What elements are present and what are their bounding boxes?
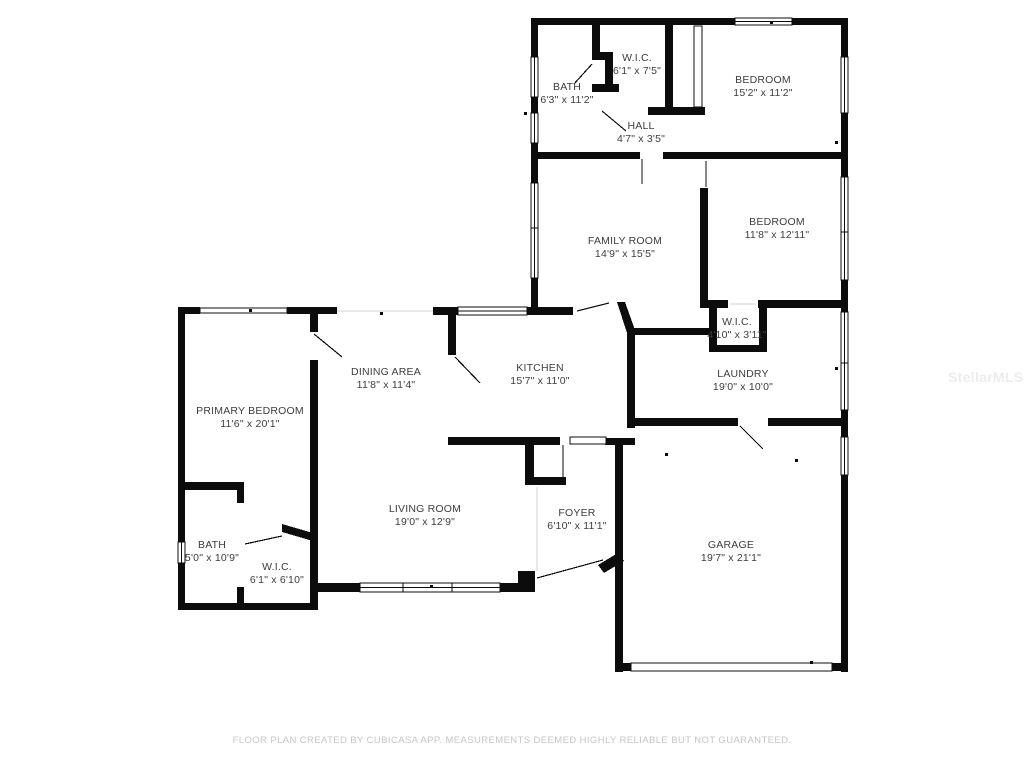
room-dims: 19'7" x 21'1"	[701, 552, 761, 565]
room-name: W.I.C.	[613, 52, 661, 65]
room-label-kitchen: KITCHEN 15'7" x 11'0"	[510, 362, 569, 388]
room-label-wic-3: W.I.C. 6'1" x 6'10"	[250, 561, 304, 587]
floor-plan-image: BATH 6'3" x 11'2" W.I.C. 6'1" x 7'5" BED…	[0, 0, 1024, 768]
room-label-hall: HALL 4'7" x 3'5"	[617, 120, 665, 146]
room-name: BEDROOM	[733, 74, 792, 87]
windows-layer	[178, 18, 848, 592]
room-name: BATH	[540, 81, 593, 94]
room-dims: 15'7" x 11'0"	[510, 375, 569, 388]
room-label-living-room: LIVING ROOM 19'0" x 12'9"	[389, 503, 461, 529]
room-label-bath-2: BATH 5'0" x 10'9"	[185, 539, 239, 565]
room-name: GARAGE	[701, 539, 761, 552]
room-name: W.I.C.	[250, 561, 304, 574]
room-dims: 6'10" x 11'1"	[547, 520, 606, 533]
pocket-door	[570, 437, 606, 444]
room-name: LIVING ROOM	[389, 503, 461, 516]
room-dims: 11'8" x 12'11"	[745, 229, 810, 242]
disclaimer-text: FLOOR PLAN CREATED BY CUBICASA APP. MEAS…	[0, 735, 1024, 746]
room-dims: 19'0" x 12'9"	[389, 516, 461, 529]
room-dims: 14'9" x 15'5"	[588, 248, 662, 261]
room-name: PRIMARY BEDROOM	[196, 405, 304, 418]
room-dims: 4'10" x 3'11"	[707, 329, 766, 342]
room-name: BEDROOM	[745, 216, 810, 229]
room-dims: 15'2" x 11'2"	[733, 87, 792, 100]
room-dims: 11'6" x 20'1"	[196, 418, 304, 431]
room-name: DINING AREA	[351, 366, 421, 379]
room-name: FOYER	[547, 507, 606, 520]
room-label-bedroom-1: BEDROOM 15'2" x 11'2"	[733, 74, 792, 100]
room-label-foyer: FOYER 6'10" x 11'1"	[547, 507, 606, 533]
room-name: LAUNDRY	[713, 368, 773, 381]
room-name: FAMILY ROOM	[588, 235, 662, 248]
room-dims: 11'8" x 11'4"	[351, 379, 421, 392]
room-label-bedroom-2: BEDROOM 11'8" x 12'11"	[745, 216, 810, 242]
room-label-garage: GARAGE 19'7" x 21'1"	[701, 539, 761, 565]
garage-door	[631, 663, 832, 671]
closet-door	[694, 26, 702, 107]
room-dims: 6'3" x 11'2"	[540, 94, 593, 107]
room-label-laundry: LAUNDRY 19'0" x 10'0"	[713, 368, 773, 394]
room-name: KITCHEN	[510, 362, 569, 375]
room-label-dining-area: DINING AREA 11'8" x 11'4"	[351, 366, 421, 392]
room-label-wic-2: W.I.C. 4'10" x 3'11"	[707, 316, 766, 342]
room-dims: 6'1" x 6'10"	[250, 574, 304, 587]
room-name: W.I.C.	[707, 316, 766, 329]
stellar-mls-watermark: StellarMLS	[948, 369, 1023, 385]
room-label-primary-bedroom: PRIMARY BEDROOM 11'6" x 20'1"	[196, 405, 304, 431]
room-label-bath-1: BATH 6'3" x 11'2"	[540, 81, 593, 107]
front-door	[537, 560, 603, 578]
room-name: BATH	[185, 539, 239, 552]
room-dims: 6'1" x 7'5"	[613, 65, 661, 78]
room-dims: 5'0" x 10'9"	[185, 552, 239, 565]
room-name: HALL	[617, 120, 665, 133]
room-label-wic-1: W.I.C. 6'1" x 7'5"	[613, 52, 661, 78]
room-dims: 19'0" x 10'0"	[713, 381, 773, 394]
room-label-family-room: FAMILY ROOM 14'9" x 15'5"	[588, 235, 662, 261]
room-dims: 4'7" x 3'5"	[617, 133, 665, 146]
